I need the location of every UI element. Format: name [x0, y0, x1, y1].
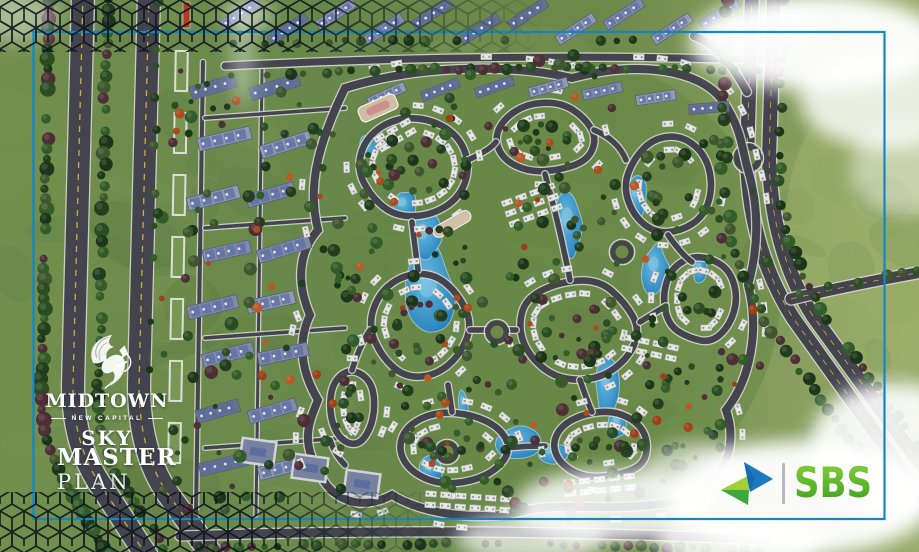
cube-pattern-overlay-bottom: [0, 492, 440, 552]
sbs-logo-divider: [782, 463, 785, 504]
tagline-rule-right: [148, 418, 163, 419]
svg-text:SBS: SBS: [794, 460, 872, 506]
sbs-logo: SBS: [719, 458, 874, 508]
griffin-logo-icon: [80, 333, 134, 389]
cube-pattern-overlay-top: [0, 0, 545, 52]
sbs-arrows-icon: [719, 458, 775, 508]
sbs-wordmark: SBS: [792, 460, 874, 506]
midtown-logo: MIDTOWN NEW CAPITAL SKY: [40, 333, 174, 450]
master-plan-label: MASTER PLAN: [57, 446, 177, 493]
tagline-rule-left: [51, 418, 66, 419]
brand-tagline: NEW CAPITAL: [71, 415, 142, 422]
master-plan-poster: MIDTOWN NEW CAPITAL SKY MASTER PLAN SBS: [0, 0, 919, 552]
brand-name: MIDTOWN: [40, 390, 174, 412]
plan-word-plan: PLAN: [57, 472, 177, 493]
brand-tagline-row: NEW CAPITAL: [40, 415, 174, 422]
plan-word-master: MASTER: [57, 446, 177, 469]
